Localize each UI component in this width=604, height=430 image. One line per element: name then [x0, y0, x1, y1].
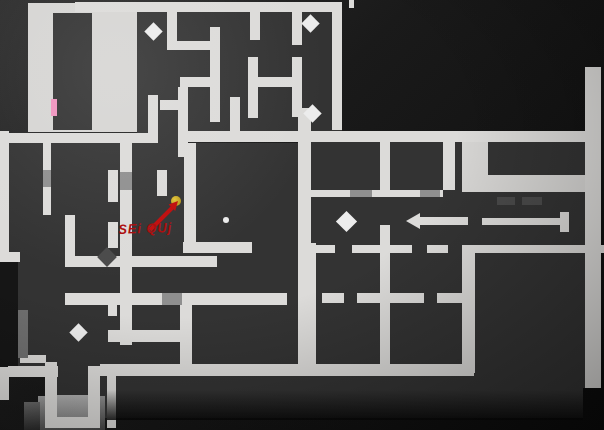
bottom-fade: [107, 390, 583, 420]
door-notch: [420, 190, 440, 197]
wall: [108, 305, 117, 316]
wall-south-row: [427, 245, 448, 253]
wall: [108, 222, 118, 248]
wall: [210, 27, 220, 122]
wall: [108, 330, 185, 342]
hall-inner-room-floor: [53, 13, 92, 130]
wall: [250, 77, 292, 87]
door-notch: [350, 190, 372, 197]
player-marker-dot: [171, 196, 181, 206]
wall: [322, 293, 344, 303]
wall: [292, 8, 302, 45]
game-screen: SEi QUj: [0, 0, 604, 430]
east-corridor-light: [462, 175, 601, 192]
wall: [0, 367, 9, 400]
wall: [183, 242, 252, 253]
wall-tick: [349, 0, 354, 8]
wall: [230, 97, 240, 133]
wall: [250, 12, 260, 40]
wall: [380, 141, 390, 190]
entrance-wall-right: [88, 368, 100, 420]
wall-diamond-room: [332, 3, 342, 130]
wall: [184, 143, 196, 253]
door-notch: [162, 293, 182, 305]
small-pickup-dot: [223, 217, 229, 223]
wall: [157, 170, 167, 196]
wall: [148, 95, 158, 133]
wall: [65, 215, 75, 256]
entrance-apron-side: [24, 402, 40, 430]
wall: [180, 77, 212, 87]
wall: [167, 41, 212, 50]
entrance-step: [57, 395, 88, 418]
right-lower-floor: [474, 253, 585, 388]
wall: [248, 57, 258, 118]
wall-right-edge: [585, 67, 601, 388]
wall: [357, 293, 424, 303]
table-bar-cap: [560, 212, 569, 232]
wall: [462, 245, 475, 373]
doorway-floor: [158, 133, 178, 143]
bg-patch: [0, 252, 18, 367]
wall-band-left: [0, 133, 158, 143]
wall: [65, 256, 217, 267]
door-mark: [522, 197, 542, 205]
corridor-gap-floor: [455, 140, 462, 205]
table-arrow-bar: [418, 217, 468, 225]
wall-left-edge: [0, 131, 9, 262]
wall: [0, 252, 20, 262]
wall-south-row: [352, 245, 412, 253]
wall: [108, 170, 118, 202]
gray-wall-faint: [18, 310, 28, 358]
entrance-wall-cap: [45, 417, 100, 428]
pink-door: [51, 99, 57, 116]
wall: [303, 243, 316, 372]
wall: [437, 293, 462, 303]
entrance-corridor-floor: [57, 362, 88, 397]
wall: [160, 100, 180, 110]
annotation-text: SEi QUj: [118, 220, 172, 237]
wall-south-row: [302, 245, 335, 253]
level-map-canvas[interactable]: [0, 0, 604, 430]
door-notch: [43, 170, 51, 187]
table-bar: [482, 218, 562, 225]
wall: [443, 131, 455, 190]
door-notch: [120, 172, 132, 190]
door-mark: [497, 197, 515, 205]
wall-bottom: [100, 364, 474, 376]
